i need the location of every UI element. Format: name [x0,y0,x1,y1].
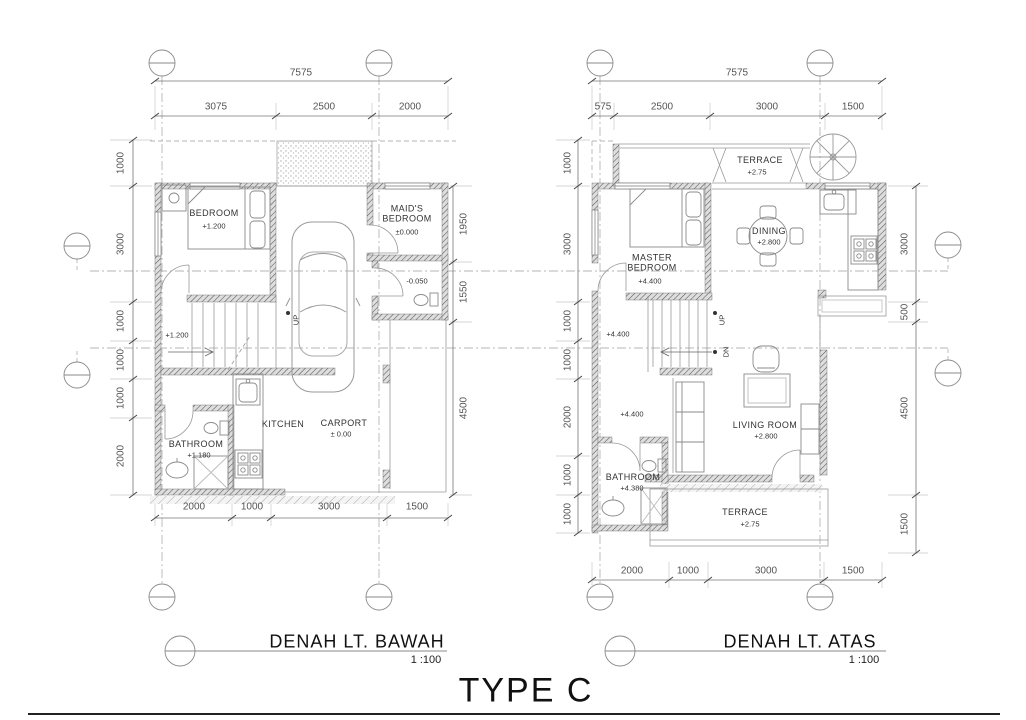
lower-dim-bottom-3: 1500 [406,502,428,513]
grid-lines [77,76,948,584]
toilet-tank [430,293,438,306]
level-carport: ± 0.00 [331,430,352,439]
washbasin [166,462,188,478]
room-label-terrace-bottom: TERRACE [722,507,768,517]
bathroom-door-arc [165,411,193,439]
lower-plan-scale: 1 :100 [411,654,442,666]
lower-dim-left-2: 1000 [116,310,127,332]
grid-bubbles [64,50,961,610]
stove [235,450,262,478]
level-master-bedroom: +4.400 [638,277,661,286]
lower-dim-bottom-2: 3000 [318,502,340,513]
upper-dim-top-0: 575 [595,102,612,113]
upper-kitchen-fixtures [820,189,878,290]
toilet-tank [220,421,229,435]
dining-set [737,206,803,266]
room-label-dining: DINING [752,226,786,236]
living-door-arc [772,450,800,478]
maid-toilet-fixtures [414,293,438,306]
upper-plan-title: DENAH LT. ATAS [723,632,876,653]
level-hall-lower: +4.400 [620,410,643,419]
lower-dim-right-0: 1950 [459,213,470,235]
bay-window [818,296,886,316]
kitchen-fixtures [233,374,263,489]
lower-dim-right-1: 1550 [459,281,470,303]
room-label-bedroom: BEDROOM [189,208,238,218]
up-marker-dot [713,311,717,315]
room-label-bathroom: BATHROOM [169,439,224,449]
room-label-upper-bathroom: BATHROOM [606,472,661,482]
lower-dim-left-1: 3000 [116,233,127,255]
dn-marker-dot [713,350,717,354]
level-terrace-bottom: +2.75 [741,520,760,529]
upper-dim-overall: 7575 [726,68,748,79]
room-label-master-bedroom: MASTER BEDROOM [612,253,692,274]
upper-paving-strip [660,484,822,492]
maid-door-arc [370,225,398,253]
room-label-maids-bedroom: MAID'S BEDROOM [372,204,442,225]
lower-dim-bottom-1: 1000 [241,502,263,513]
lower-dim-left-0: 1000 [116,152,127,174]
level-bedroom: +1.200 [202,222,225,231]
level-hall-upper: +4.400 [606,330,629,339]
spiral-stair [810,134,856,180]
master-bed [630,189,704,247]
dining-table [749,217,787,255]
upper-dim-left-3: 1000 [563,349,574,371]
upper-dim-left-5: 1000 [563,464,574,486]
lower-plan-title: DENAH LT. BAWAH [269,632,444,653]
upper-plan-scale: 1 :100 [849,654,880,666]
lower-dim-left-4: 1000 [116,387,127,409]
upper-dim-left-6: 1000 [563,503,574,525]
cabinet [801,404,819,454]
upper-dim-bottom-2: 3000 [755,566,777,577]
lower-thin-outlines [276,186,446,492]
lower-dim-left-5: 2000 [116,445,127,467]
floor-plans-graphic [0,0,1026,720]
level-upper-bathroom: +4.380 [620,484,643,493]
toilet-bowl [204,423,218,434]
upper-dim-bottom-0: 2000 [621,566,643,577]
level-maid-toilet: -0.050 [406,277,427,286]
level-living-room: +2.800 [754,432,777,441]
up-label: UP [292,315,301,325]
level-bathroom: +1.180 [187,451,210,460]
toilet-bowl [414,295,428,306]
washbasin [602,500,624,516]
carport-canopy [277,141,372,186]
terrace-column-braces [713,148,803,182]
upper-dim-right-0: 3000 [900,233,911,255]
upper-dim-right-2: 4500 [900,397,911,419]
drawing-sheet: 7575 3075 2500 2000 2000 1000 3000 1500 … [0,0,1026,720]
car [286,222,360,392]
room-label-kitchen: KITCHEN [262,419,304,429]
level-maids-bedroom: ±0.000 [396,228,419,237]
desk-and-chair [744,346,790,407]
upper-dim-top-2: 3000 [756,102,778,113]
room-label-living-room: LIVING ROOM [733,420,797,430]
lower-dim-right-2: 4500 [459,397,470,419]
level-lower-stairs: +1.200 [165,331,188,340]
upper-bathroom-door-arc [612,443,640,471]
terrace-slab [650,489,828,546]
level-dining: +2.800 [757,238,780,247]
dn-label: DN [722,347,731,358]
upper-dim-right-1: 500 [900,304,911,321]
lower-dim-top-0: 3075 [205,102,227,113]
bedroom-door-arc [161,265,189,293]
upper-dim-left-4: 2000 [563,406,574,428]
lower-dim-top-1: 2500 [313,102,335,113]
upper-dim-bottom-1: 1000 [677,566,699,577]
upper-dim-bottom-3: 1500 [842,566,864,577]
upper-dim-top-1: 2500 [651,102,673,113]
lower-dim-top-2: 2000 [399,102,421,113]
upper-stairs [653,300,712,367]
lower-dim-bottom-0: 2000 [183,502,205,513]
sofa [676,382,704,472]
up-label: UP [718,315,727,325]
upper-dim-left-0: 1000 [563,152,574,174]
lower-dim-overall: 7575 [290,68,312,79]
upper-dim-left-2: 1000 [563,310,574,332]
dimension-extension-lines [110,86,928,588]
type-label: TYPE C [459,672,594,711]
upper-dim-left-1: 3000 [563,233,574,255]
upper-dim-right-3: 1500 [900,513,911,535]
upper-dim-top-3: 1500 [842,102,864,113]
up-marker-dot [286,311,290,315]
room-label-carport: CARPORT [321,418,368,428]
lower-dim-left-3: 1000 [116,349,127,371]
room-label-terrace-top: TERRACE [737,155,783,165]
toilet-bowl [642,461,656,472]
level-terrace-top: +2.75 [748,168,767,177]
